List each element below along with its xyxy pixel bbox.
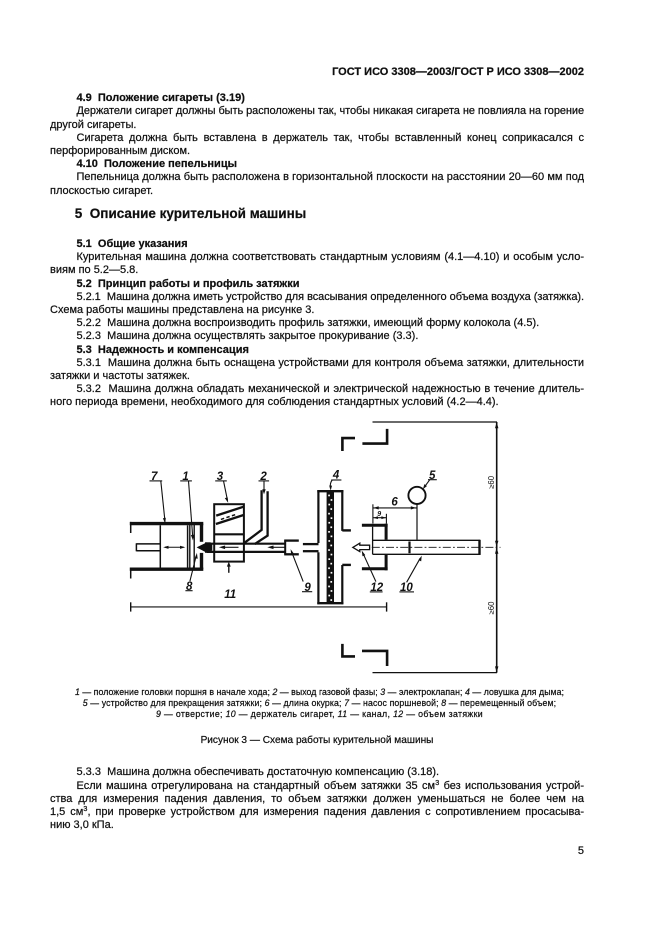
svg-text:11: 11: [224, 589, 236, 601]
svg-text:12: 12: [370, 582, 383, 594]
svg-text:4: 4: [332, 470, 340, 482]
svg-text:6: 6: [391, 496, 398, 508]
svg-text:2: 2: [259, 471, 267, 483]
svg-text:10: 10: [400, 582, 413, 594]
svg-text:1: 1: [182, 471, 188, 483]
svg-text:3: 3: [217, 471, 224, 483]
svg-text:9: 9: [377, 511, 381, 518]
svg-text:7: 7: [151, 471, 158, 483]
svg-text:8: 8: [186, 581, 193, 593]
svg-text:≥60: ≥60: [487, 601, 496, 615]
svg-text:9: 9: [304, 582, 311, 594]
svg-text:5: 5: [429, 470, 436, 482]
svg-text:≥60: ≥60: [487, 475, 496, 489]
